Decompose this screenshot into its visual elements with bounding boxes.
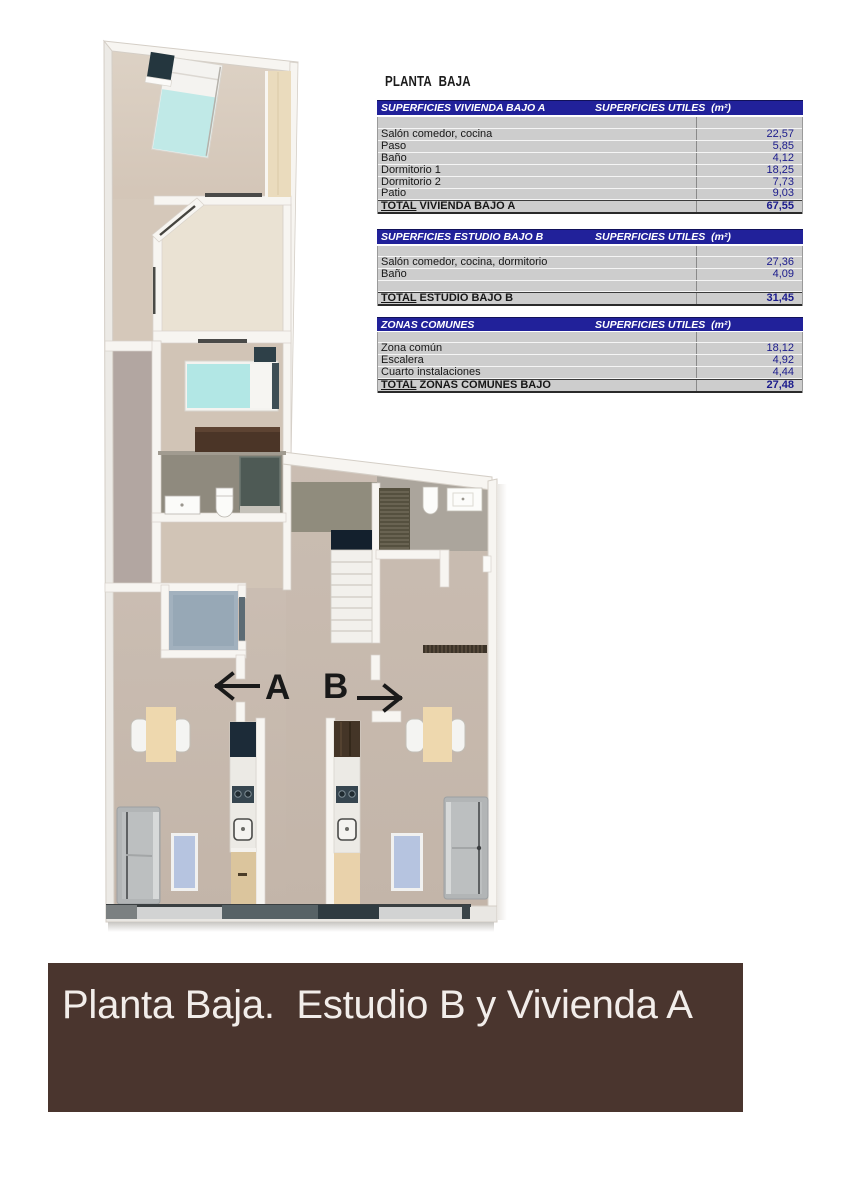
svg-text:A: A	[265, 668, 290, 707]
svg-text:B: B	[323, 667, 348, 706]
